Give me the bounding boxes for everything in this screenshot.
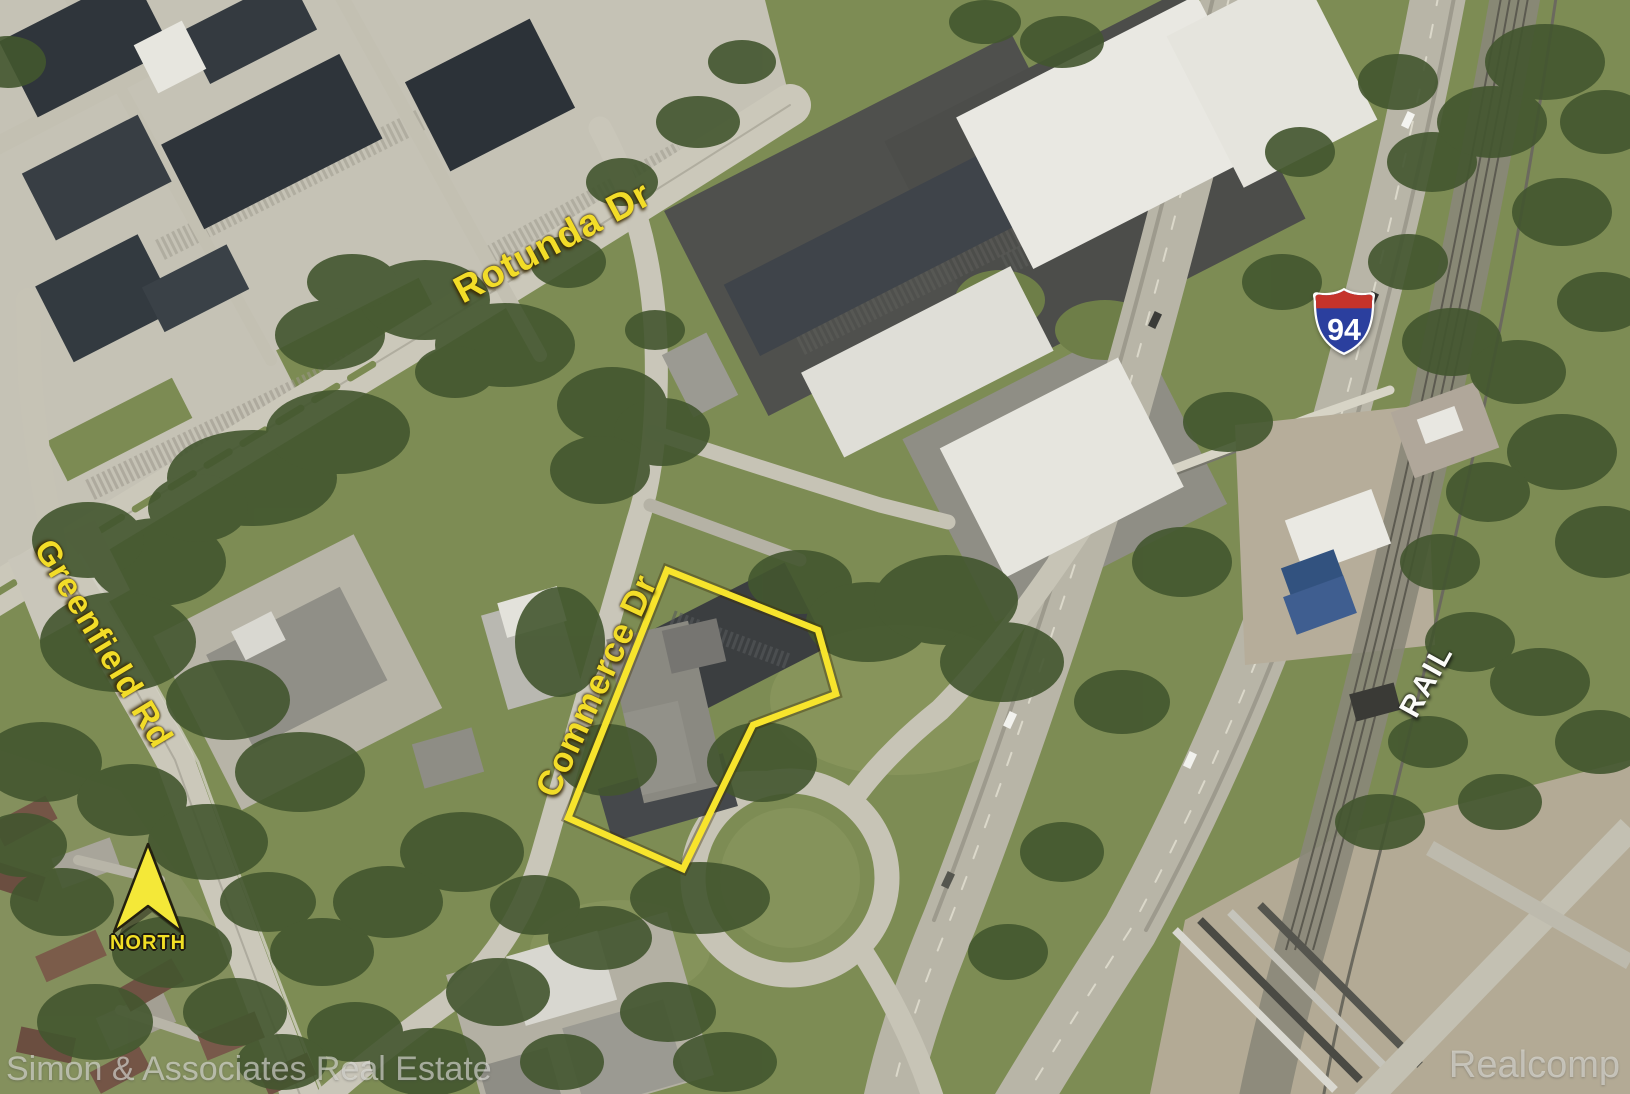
interstate-94-shield: 94 [1311, 287, 1377, 356]
satellite-imagery [0, 0, 1630, 1094]
north-label: NORTH [96, 932, 200, 955]
watermark-realcomp: Realcomp [1449, 1044, 1620, 1087]
shield-route-number: 94 [1327, 314, 1361, 347]
north-arrow-icon [104, 836, 188, 936]
watermark-broker: Simon & Associates Real Estate [6, 1050, 492, 1089]
aerial-map: Rotunda Dr Greenfield Rd Commerce Dr RAI… [0, 0, 1630, 1094]
